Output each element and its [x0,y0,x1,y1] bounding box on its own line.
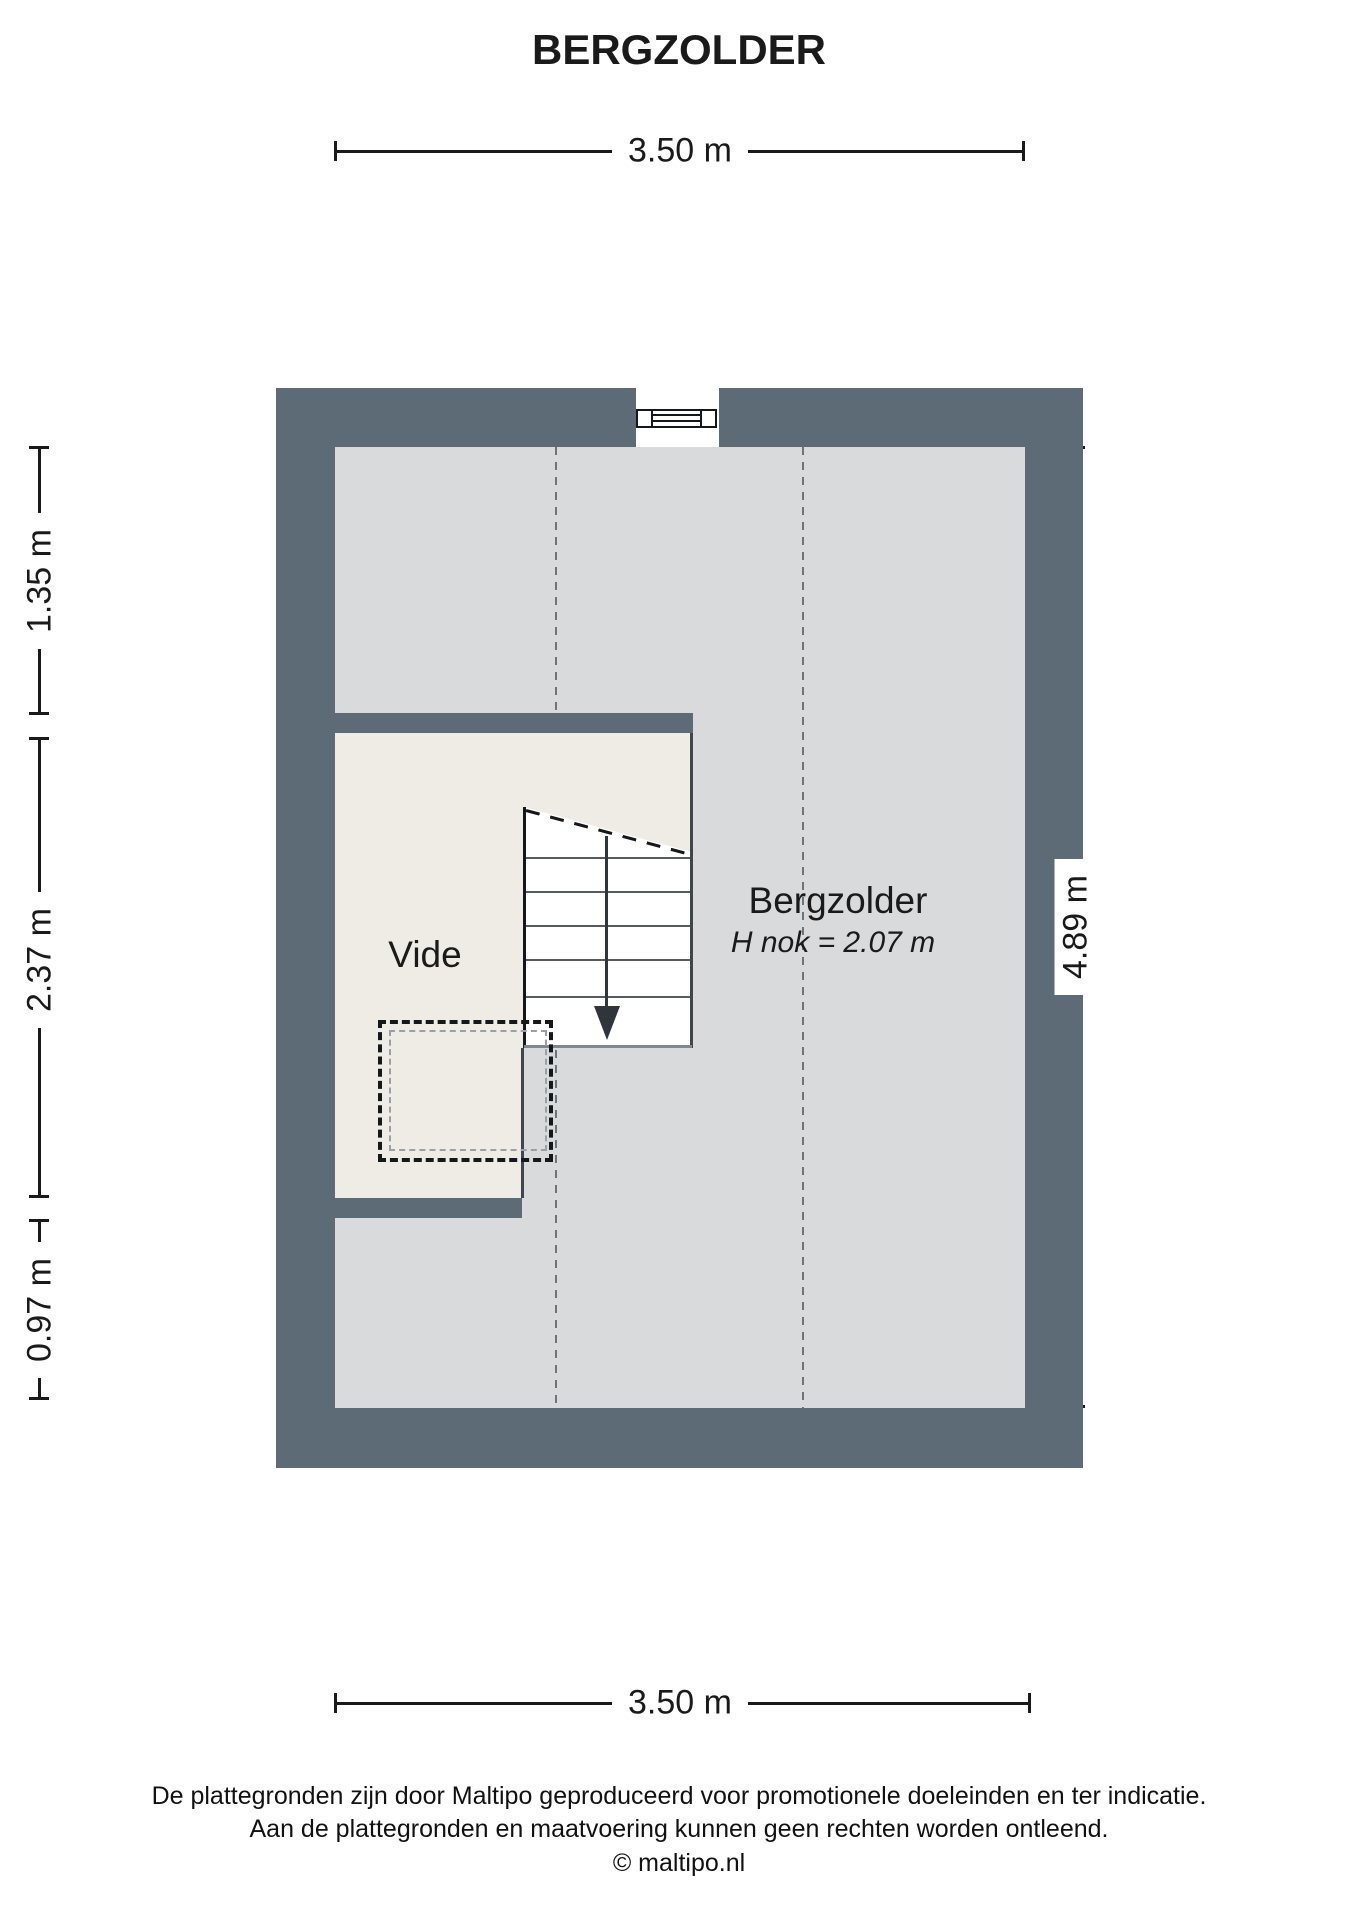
vide-top-wall [335,713,693,733]
floorplan-page: BERGZOLDER 3.50 m 1.35 m 2.37 m 0.97 m 4… [0,0,1358,1920]
footer-disclaimer-line1: De plattegronden zijn door Maltipo gepro… [0,1779,1358,1813]
vide-right-edge-upper [690,733,693,1048]
dim-label-left-1: 1.35 m [19,513,62,649]
room-note-ridge-height: H nok = 2.07 m [731,926,935,960]
vide-bottom-wall [335,1198,522,1218]
footer-copyright: © maltipo.nl [0,1846,1358,1880]
dim-label-left-2: 2.37 m [19,892,62,1028]
stair-tread [524,925,692,927]
stair-tread [524,891,692,893]
dim-tick [1022,141,1025,161]
dim-tick [29,446,49,449]
roof-line-left-upper [555,447,557,713]
room-label-vide: Vide [388,934,461,976]
dim-tick [29,712,49,715]
dim-tick [29,1219,49,1222]
stair-tread [524,959,692,961]
stairwell-left-edge [523,807,526,1048]
window-symbol [636,409,717,428]
room-label-bergzolder: Bergzolder [749,880,928,922]
dim-label-right: 4.89 m [1055,859,1098,995]
stair-tread [524,996,692,998]
dim-tick [334,1693,337,1713]
window-glazing-line [653,414,700,416]
stair-tread [524,857,692,859]
stair-direction-line [605,836,608,1008]
dim-label-left-3: 0.97 m [19,1242,62,1378]
arrow-down-icon [594,1006,620,1040]
dim-label-top: 3.50 m [612,130,748,173]
dim-tick [334,141,337,161]
dim-tick [29,1195,49,1198]
roof-line-left-lower [555,1050,557,1408]
dim-label-bottom: 3.50 m [612,1682,748,1725]
footer-disclaimer-line2: Aan de plattegronden en maatvoering kunn… [0,1812,1358,1846]
dim-tick [29,1397,49,1400]
page-title: BERGZOLDER [0,26,1358,74]
skylight-dashed-box-inner [389,1030,547,1151]
window-mullion [651,409,653,428]
window-mullion [700,409,702,428]
dim-tick [29,737,49,740]
window-glazing-line [653,420,700,422]
dim-tick [1028,1693,1031,1713]
